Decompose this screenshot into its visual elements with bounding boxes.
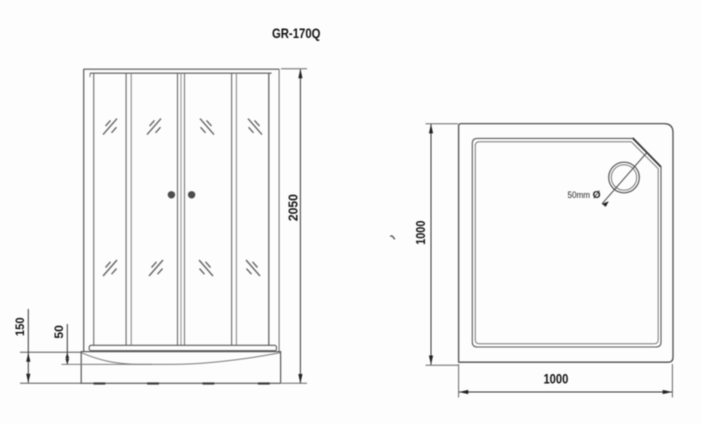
svg-text:150: 150 <box>13 317 27 336</box>
svg-text:1000: 1000 <box>543 372 568 387</box>
svg-text:GR-170Q: GR-170Q <box>272 25 321 41</box>
svg-text:2050: 2050 <box>287 194 301 221</box>
svg-text:Ø: Ø <box>593 190 601 201</box>
svg-text:50: 50 <box>52 325 66 339</box>
svg-text:1000: 1000 <box>414 221 428 245</box>
svg-text:50mm: 50mm <box>568 190 591 200</box>
